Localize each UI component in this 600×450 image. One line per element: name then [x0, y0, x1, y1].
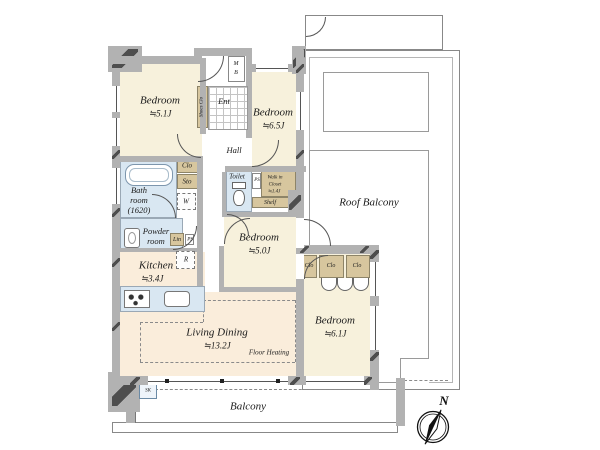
fridge-label: R — [184, 257, 188, 264]
bedroom1-label: Bedroom — [140, 96, 180, 107]
wall-hatch-left-2 — [112, 208, 120, 217]
bedroom2-label: Bedroom — [253, 108, 293, 119]
roof-balcony-label: Roof Balcony — [339, 198, 399, 209]
living-dining-floor-upper — [203, 292, 296, 312]
meter-box — [228, 56, 245, 82]
storage-hall-label: Sto — [183, 179, 192, 186]
wall-hatch-left-3 — [112, 258, 120, 267]
closet-hall-label: Clo — [182, 163, 192, 170]
entrance-tile-floor — [208, 86, 248, 130]
bedroom3-size: ≒5.0J — [248, 247, 271, 256]
bathroom-label-1: Bath — [131, 186, 147, 195]
floor-heating-outline-left — [140, 322, 141, 362]
wall-hatch-bed4-2 — [360, 246, 369, 253]
wall-hatch-bed4-4 — [370, 352, 379, 361]
wall-hatch-bottom-1 — [130, 377, 140, 385]
wall-bedroom3-left — [219, 246, 224, 287]
wall-top-entrance — [194, 48, 252, 56]
sink-icon — [164, 291, 190, 307]
balcony-dashed-edge-right — [404, 380, 448, 381]
bedroom3-label: Bedroom — [239, 233, 279, 244]
floor-heating-outline-bottom — [140, 362, 295, 363]
floor-heating-label: Floor Heating — [249, 350, 289, 357]
powder-room-label-2: room — [147, 237, 165, 246]
wall-hatch-right-1 — [296, 64, 304, 73]
floor-heating-outline-top-left — [140, 322, 203, 323]
entrance-label: Ent — [218, 97, 230, 106]
toilet-tank-icon — [232, 182, 246, 189]
wall-corridor-left — [197, 160, 203, 294]
wall-top-bedroom1 — [108, 56, 202, 64]
stove-icon — [124, 290, 150, 308]
washer-label: W — [183, 199, 189, 206]
wall-toilet-left — [222, 172, 226, 216]
kitchen-label: Kitchen — [139, 261, 173, 272]
balcony-left-stub — [126, 409, 135, 423]
powder-room-label-1: Powder — [143, 227, 169, 236]
bathroom-label-2: room — [130, 196, 148, 205]
wic-label-2: Closet — [269, 183, 282, 188]
bedroom4-closet-label-1: Clo — [305, 263, 314, 269]
wic-label-3: ≒1.4J — [268, 190, 281, 195]
window-bedroom1-b — [112, 118, 120, 146]
roof-void-rect — [323, 72, 429, 132]
wall-hatch-bottom-2 — [290, 377, 300, 385]
entrance-door-arc — [198, 56, 224, 82]
compass-north-label: N — [438, 393, 449, 408]
door-gap-bedroom4 — [296, 254, 304, 279]
bedroom4-closet-label-2: Clo — [327, 263, 336, 269]
window-bathroom — [112, 168, 120, 204]
bathroom-label-3: (1620) — [128, 206, 151, 215]
balcony-slab — [112, 422, 398, 433]
slop-sink-label: SK — [145, 389, 151, 394]
wall-hatch-right-2 — [296, 150, 304, 159]
window-mullion-1 — [165, 379, 169, 383]
bedroom4-closet-label-3: Clo — [353, 263, 362, 269]
toilet-label: Toilet — [229, 174, 245, 181]
floor-plan: Bedroom ≒5.1J Bedroom ≒6.5J Bedroom ≒5.0… — [0, 0, 600, 450]
window-living-dining — [148, 376, 288, 385]
wall-hatch-left-4 — [112, 322, 120, 331]
balcony-label: Balcony — [230, 402, 266, 413]
floor-heating-outline-top-right — [203, 300, 295, 301]
balcony-dashed-edge — [150, 389, 396, 390]
wall-right-lower — [296, 279, 304, 378]
bathtub-icon — [125, 164, 173, 186]
door-gap-roof-balcony — [296, 218, 304, 248]
toilet-bowl-icon — [233, 190, 245, 206]
hall-label: Hall — [226, 146, 241, 155]
window-bedroom4-b — [370, 306, 379, 350]
shelf-label: Shelf — [264, 200, 276, 206]
wic-label-1: Walk in — [268, 176, 283, 181]
wall-bedroom2-bottom — [225, 166, 306, 172]
meter-box-label-b: B — [234, 70, 238, 76]
linen-label: Lin — [173, 237, 181, 243]
living-dining-size: ≒13.2J — [203, 342, 230, 351]
kitchen-size: ≒3.4J — [141, 275, 164, 284]
wall-bedroom3-bottom — [219, 287, 304, 292]
window-bedroom1-a — [112, 86, 120, 112]
wall-hatch-bed4-3 — [370, 250, 379, 259]
bedroom4-label: Bedroom — [315, 316, 355, 327]
meter-box-label-m: M — [234, 61, 239, 67]
bedroom4-size: ≒6.1J — [324, 330, 347, 339]
wall-hatch-left-1 — [112, 150, 120, 159]
window-mullion-2 — [220, 379, 224, 383]
window-bedroom2-top — [256, 64, 288, 72]
compass: N — [406, 392, 468, 450]
window-bedroom4-bottom — [306, 376, 364, 385]
washbasin-icon — [124, 228, 140, 248]
window-bedroom4-a — [370, 262, 379, 296]
pipe-space-small-label: PS — [187, 238, 193, 243]
bedroom1-size: ≒5.1J — [149, 110, 172, 119]
window-mullion-3 — [276, 379, 280, 383]
shoes-closet-label: Shoes Clo — [200, 97, 205, 117]
column-hatch-wic — [289, 195, 301, 210]
window-bedroom2-right — [296, 92, 304, 130]
living-dining-label: Living Dining — [186, 328, 247, 339]
pipe-space-tall-label: PS — [253, 178, 261, 184]
bedroom2-size: ≒6.5J — [262, 122, 285, 131]
balcony-right-bar — [396, 378, 405, 426]
